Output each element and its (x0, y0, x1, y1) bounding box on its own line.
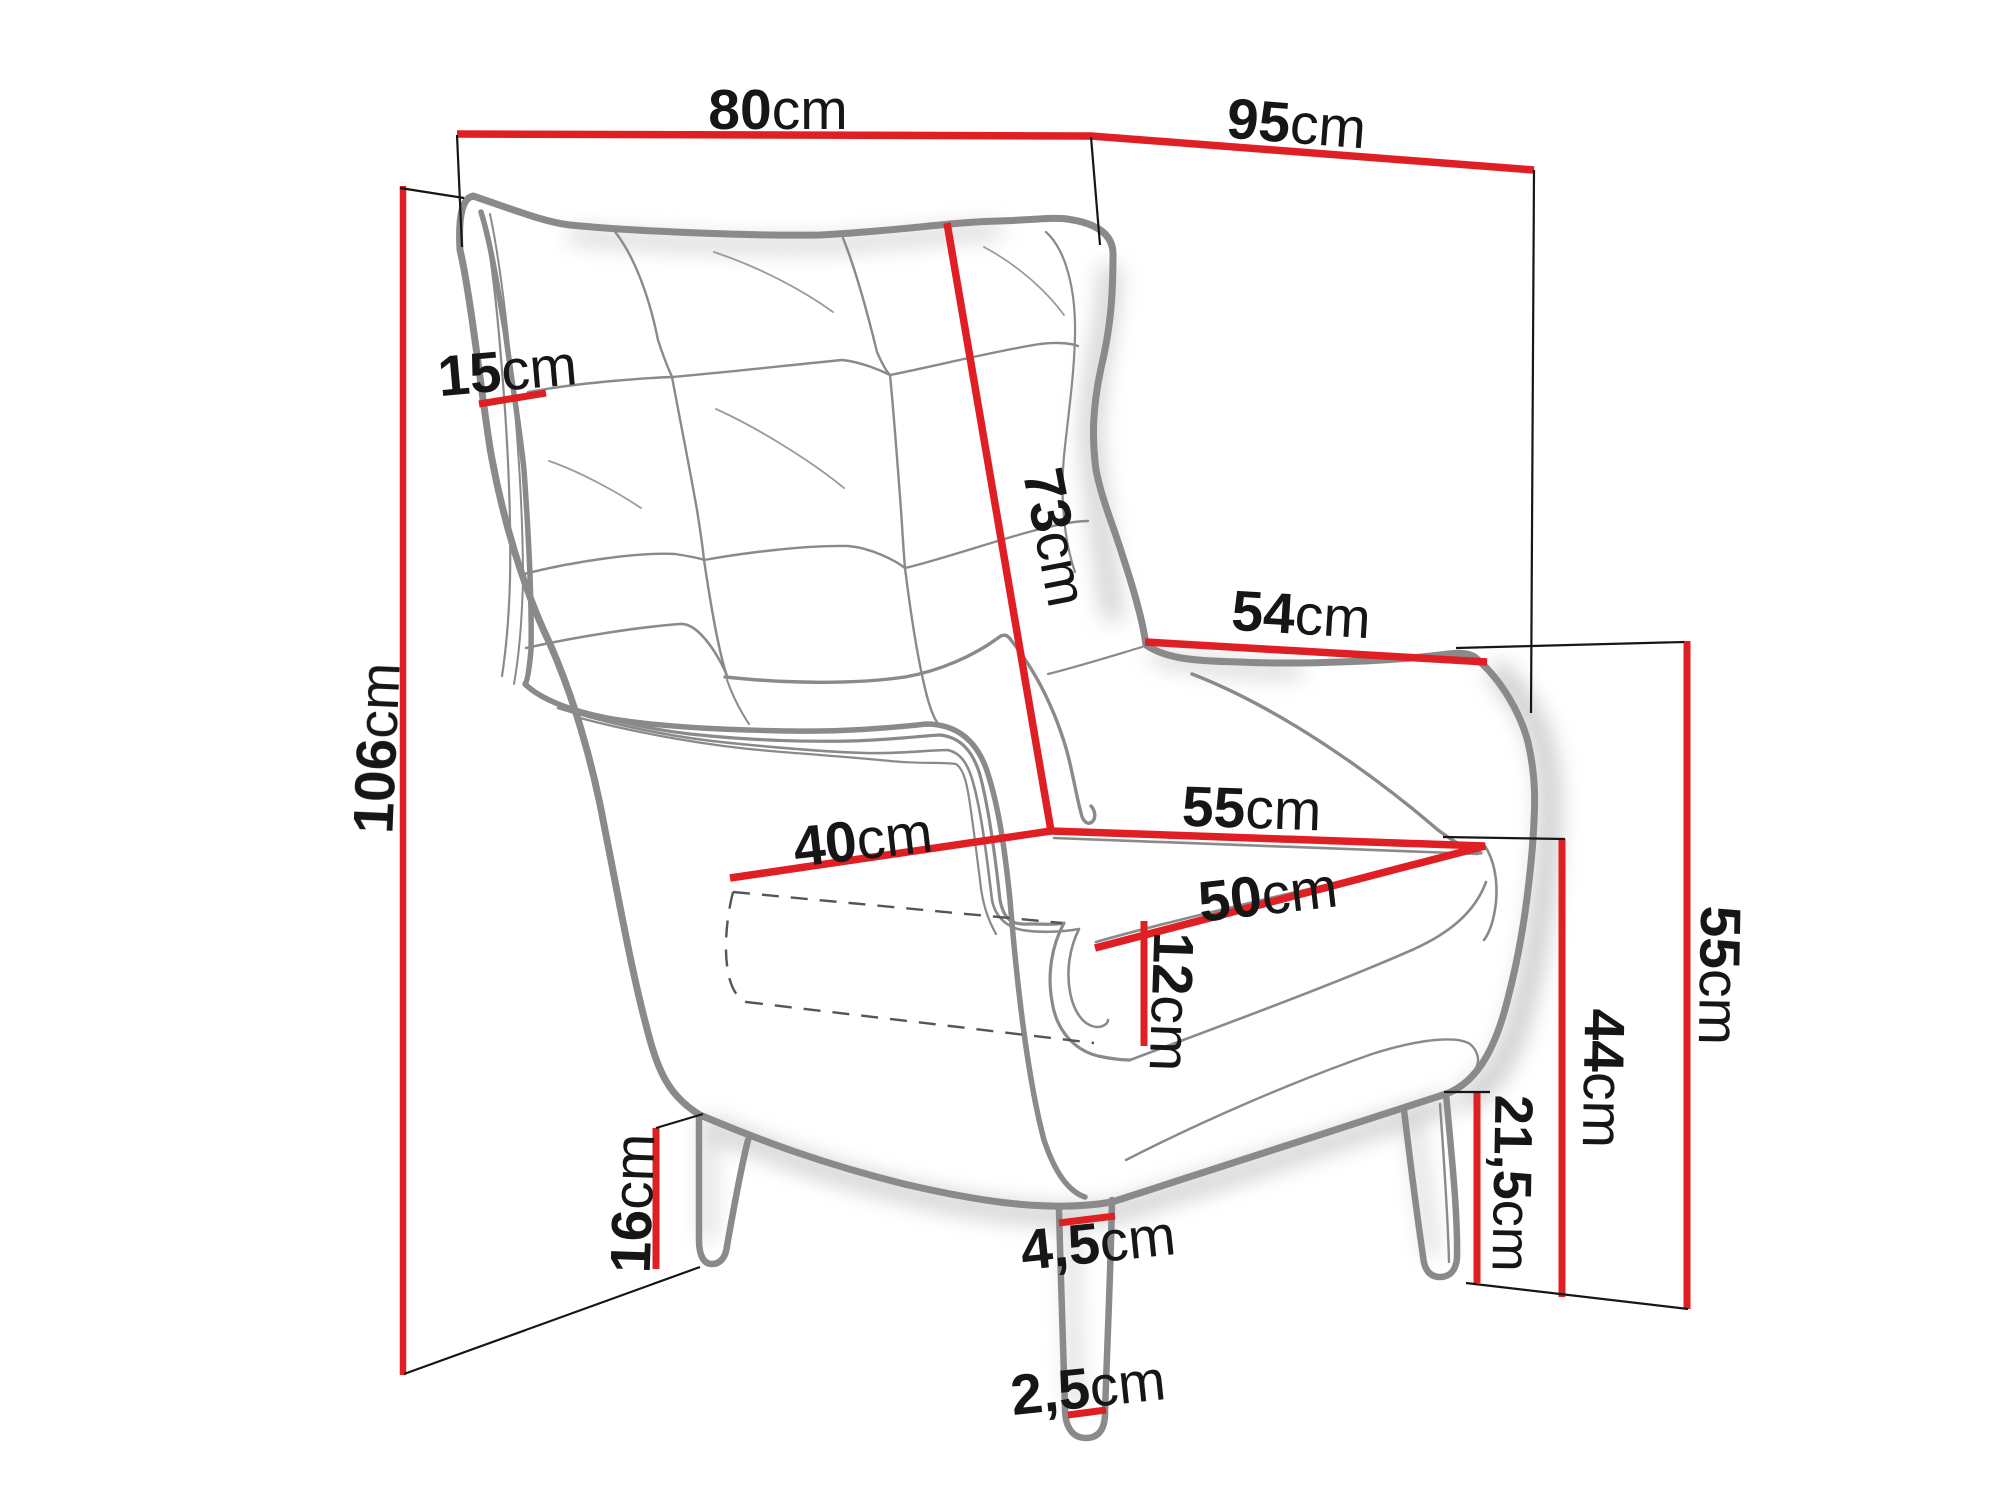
svg-text:55cm: 55cm (1181, 775, 1323, 844)
svg-text:44cm: 44cm (1570, 1008, 1636, 1148)
svg-text:40cm: 40cm (790, 800, 936, 879)
svg-text:106cm: 106cm (341, 661, 412, 835)
svg-text:2,5cm: 2,5cm (1007, 1348, 1168, 1428)
svg-text:95cm: 95cm (1224, 87, 1368, 162)
svg-text:73cm: 73cm (1010, 463, 1099, 612)
svg-text:21,5cm: 21,5cm (1480, 1094, 1543, 1272)
svg-text:15cm: 15cm (435, 333, 579, 409)
svg-text:50cm: 50cm (1195, 855, 1341, 934)
svg-text:54cm: 54cm (1230, 579, 1373, 651)
svg-text:16cm: 16cm (599, 1133, 668, 1275)
svg-text:12cm: 12cm (1137, 931, 1206, 1073)
svg-text:55cm: 55cm (1686, 905, 1752, 1045)
svg-text:80cm: 80cm (708, 78, 847, 142)
